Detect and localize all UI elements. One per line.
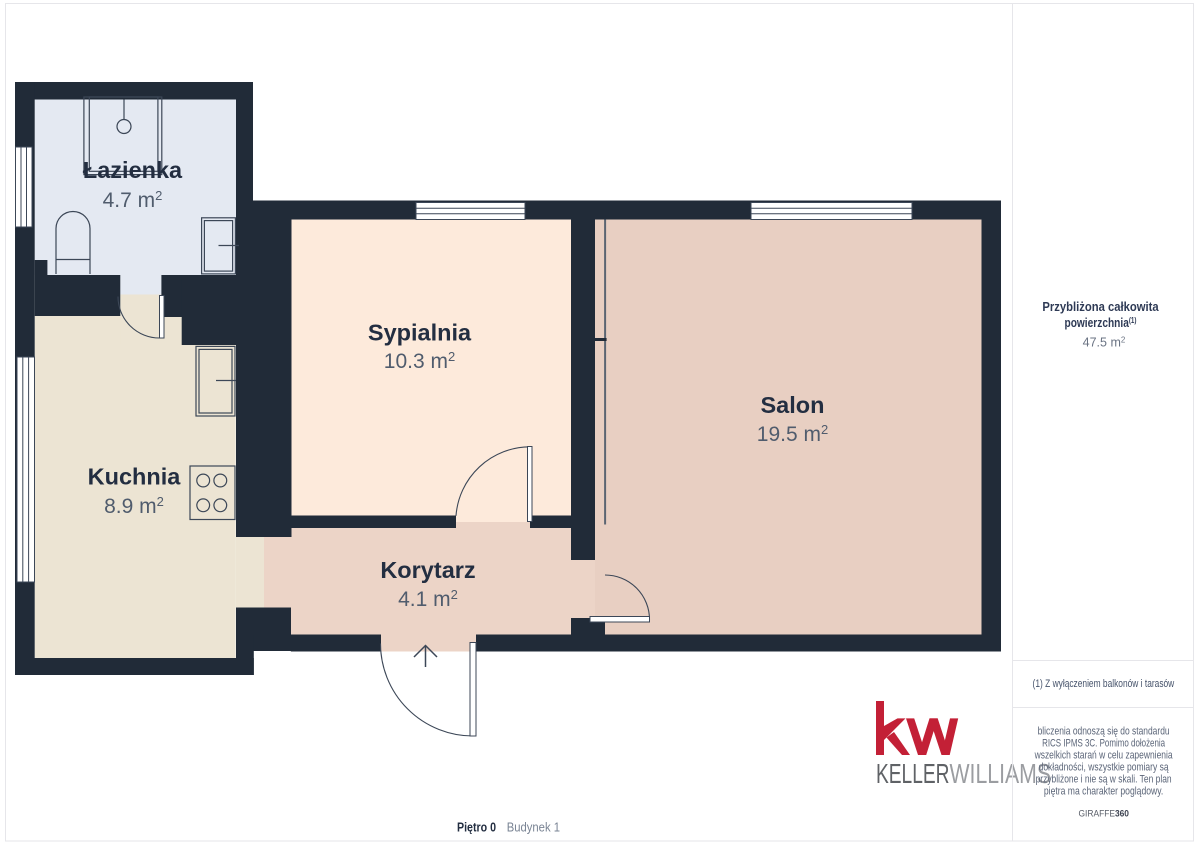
svg-text:47.5 m2: 47.5 m2 (1083, 336, 1126, 350)
svg-text:GIRAFFE360: GIRAFFE360 (1079, 808, 1130, 819)
svg-text:Korytarz: Korytarz (380, 557, 475, 583)
svg-text:(1) Z wyłączeniem balkonów i t: (1) Z wyłączeniem balkonów i tarasów (1033, 678, 1175, 690)
svg-text:powierzchnia(1): powierzchnia(1) (1065, 315, 1137, 330)
svg-text:Salon: Salon (761, 392, 825, 418)
svg-text:Przybliżona całkowita: Przybliżona całkowita (1042, 299, 1159, 314)
svg-text:Sypialnia: Sypialnia (368, 320, 472, 346)
svg-text:przybliżone i nie są w skali.: przybliżone i nie są w skali. Ten plan (1036, 773, 1172, 785)
svg-text:KELLER: KELLER (876, 758, 950, 789)
svg-text:bliczenia odnoszą się do stand: bliczenia odnoszą się do standardu (1038, 725, 1170, 737)
svg-text:Kuchnia: Kuchnia (88, 464, 182, 490)
svg-text:Łazienka: Łazienka (83, 157, 183, 183)
svg-text:RICS IPMS 3C. Pomimo dołożenia: RICS IPMS 3C. Pomimo dołożenia (1042, 737, 1166, 749)
svg-text:4.1 m2: 4.1 m2 (398, 587, 458, 611)
svg-text:4.7 m2: 4.7 m2 (103, 188, 163, 212)
svg-text:Piętro 0: Piętro 0 (457, 820, 496, 835)
svg-text:8.9 m2: 8.9 m2 (104, 494, 164, 518)
svg-text:Budynek 1: Budynek 1 (507, 820, 560, 835)
svg-text:piętra ma charakter poglądowy.: piętra ma charakter poglądowy. (1044, 785, 1163, 797)
svg-text:wszelkich starań w celu zapewn: wszelkich starań w celu zapewnienia (1034, 749, 1173, 761)
svg-text:dokładności, wszystkie pomiary: dokładności, wszystkie pomiary są (1039, 761, 1170, 773)
svg-text:10.3 m2: 10.3 m2 (384, 349, 455, 373)
svg-text:19.5 m2: 19.5 m2 (757, 422, 828, 446)
